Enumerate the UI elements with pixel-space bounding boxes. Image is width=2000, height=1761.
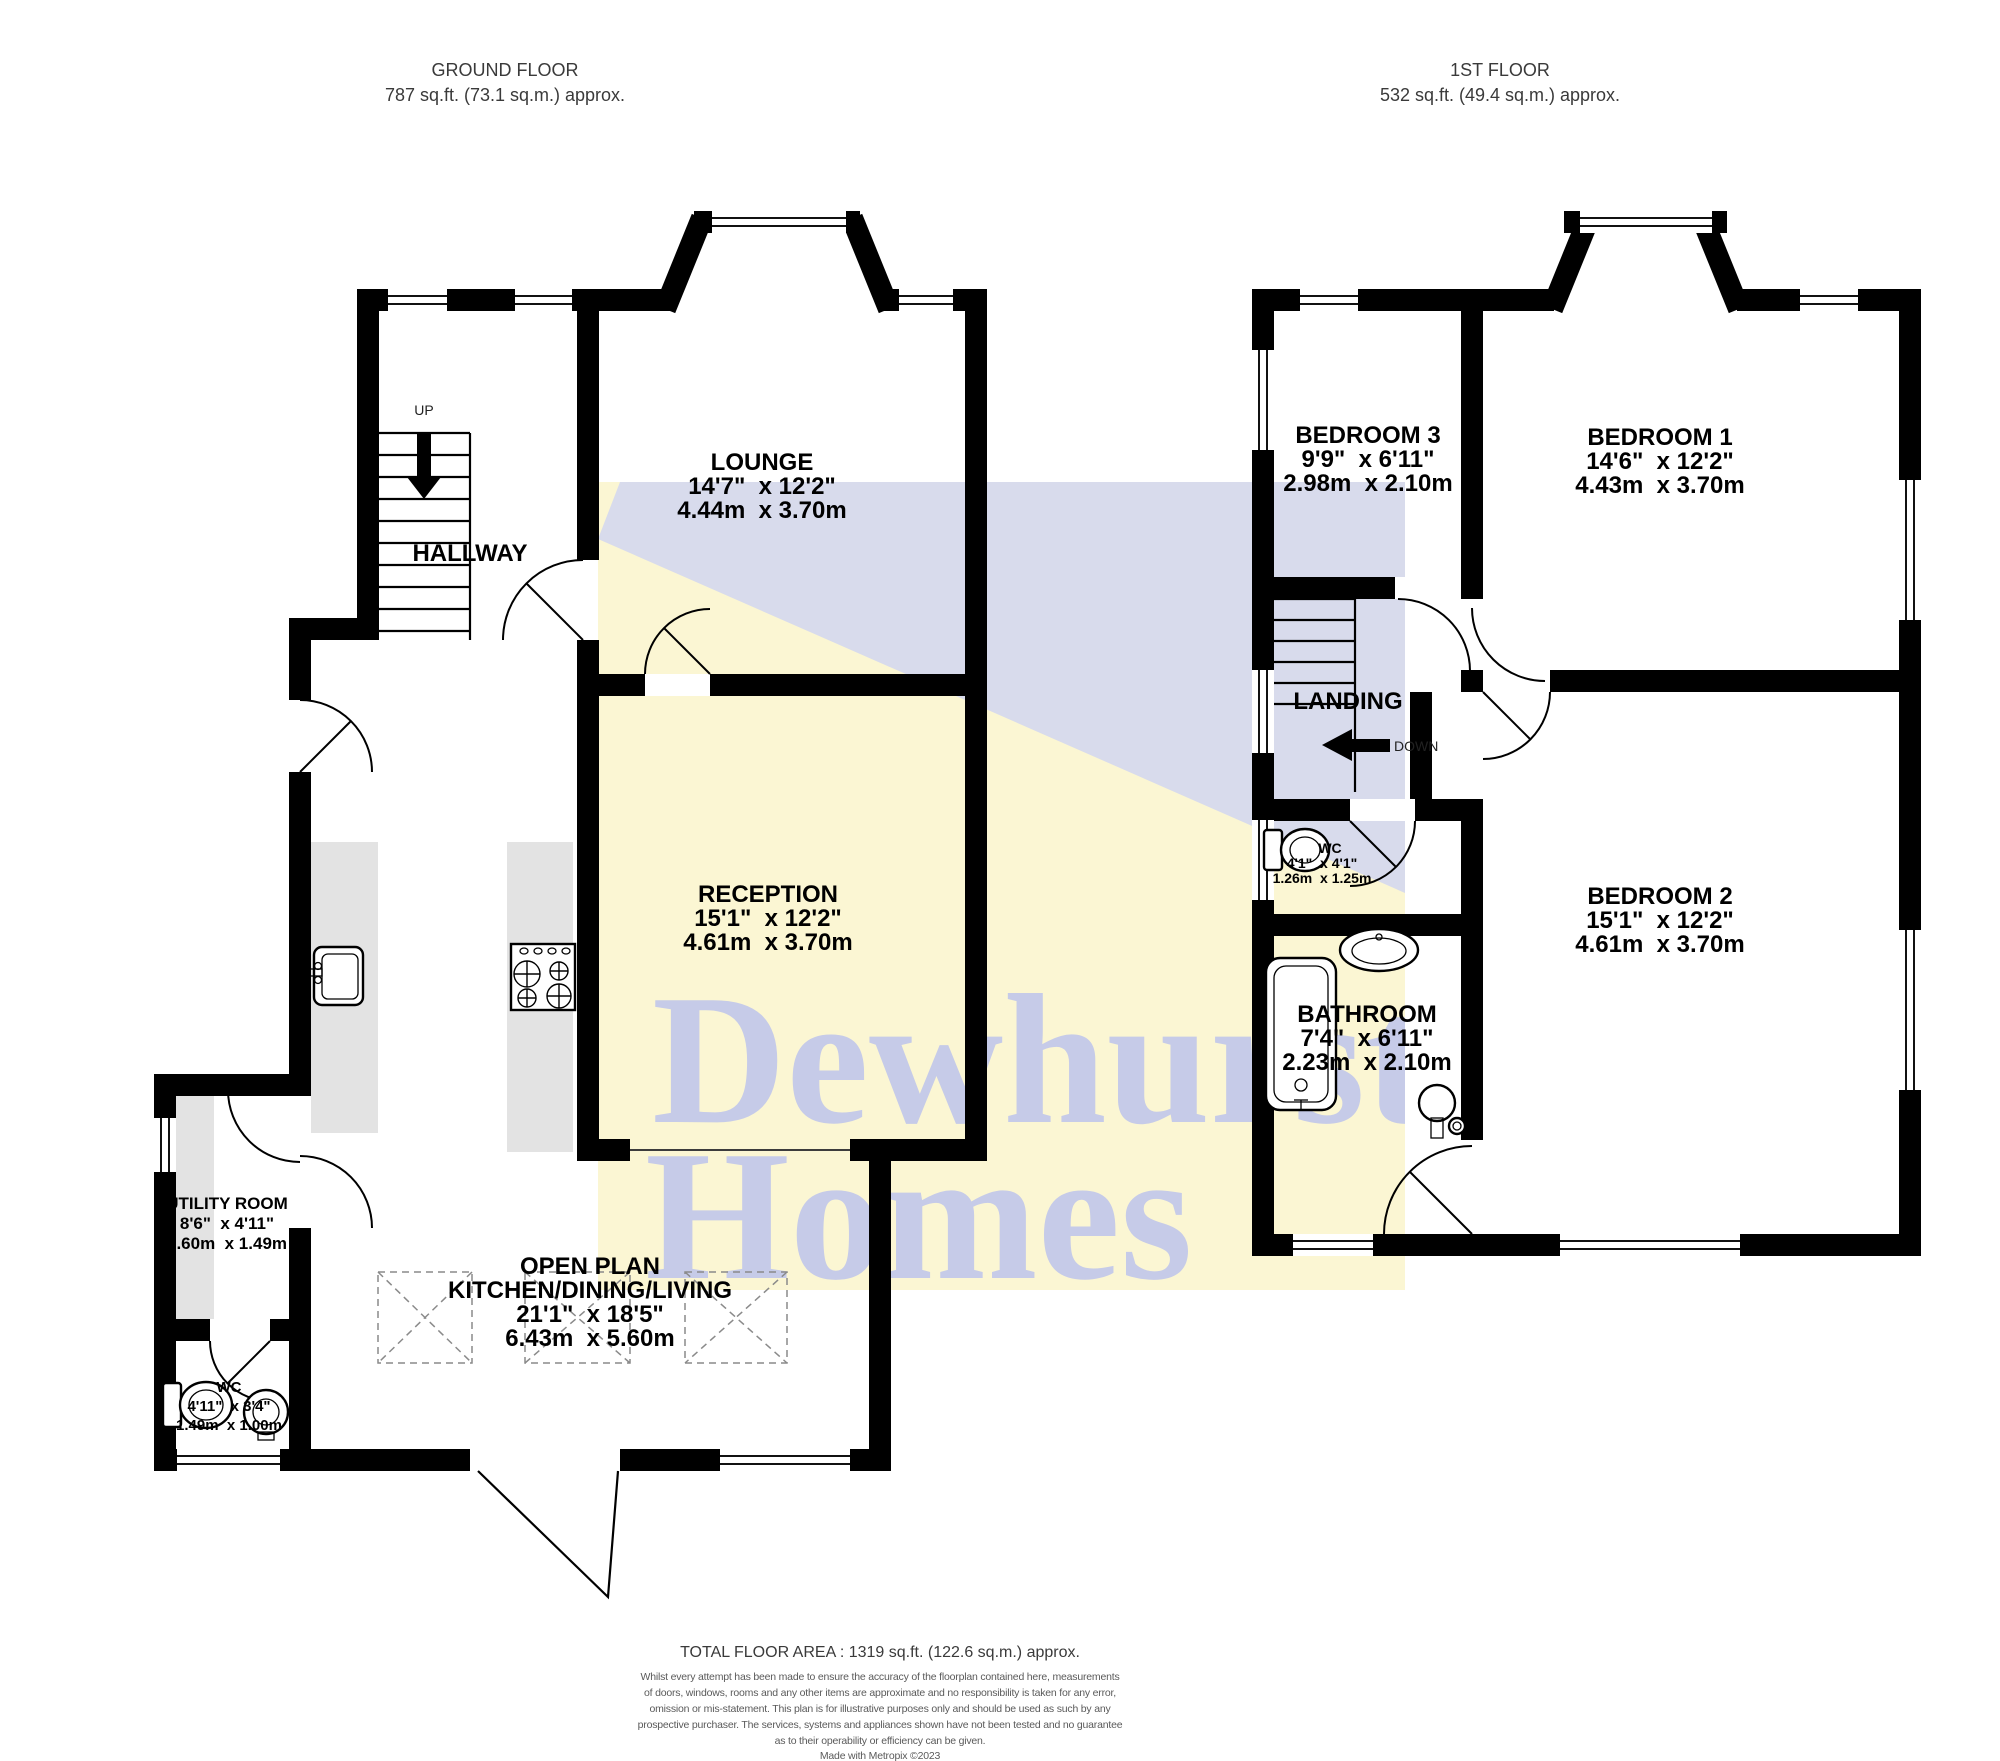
gf-wc-dims-imperial: 4'11" x 3'4" <box>187 1398 270 1415</box>
bedroom1-label: BEDROOM 1 <box>1587 424 1732 451</box>
window <box>177 1449 280 1471</box>
bathroom-dims-imperial: 7'4" x 6'11" <box>1301 1025 1434 1052</box>
first-floor-area: 532 sq.ft. (49.4 sq.m.) approx. <box>1380 85 1620 105</box>
window <box>388 289 447 311</box>
ground-floor-header: GROUND FLOOR 787 sq.ft. (73.1 sq.m.) app… <box>385 60 625 105</box>
pedestal-basin-icon <box>1419 1085 1465 1138</box>
ground-floor-stairs <box>379 433 470 640</box>
window <box>1800 289 1858 311</box>
kitchen-label-line2: KITCHEN/DINING/LIVING <box>448 1277 732 1304</box>
ff-wc-dims-imperial: 4'1" x 4'1" <box>1287 855 1358 871</box>
gf-wc-label: WC <box>217 1379 242 1396</box>
ground-floor-title: GROUND FLOOR <box>431 60 578 80</box>
window <box>720 1449 850 1471</box>
utility-dims-metric: 2.60m x 1.49m <box>167 1234 287 1253</box>
total-floor-area: TOTAL FLOOR AREA : 1319 sq.ft. (122.6 sq… <box>680 1644 1080 1661</box>
sink-icon <box>1340 929 1418 971</box>
window <box>1560 1234 1740 1256</box>
first-floor-title: 1ST FLOOR <box>1450 60 1550 80</box>
ff-wc-label: WC <box>1318 840 1341 856</box>
sink-icon <box>308 947 363 1005</box>
kitchen-dims-metric: 6.43m x 5.60m <box>505 1325 674 1352</box>
window <box>1899 930 1921 1090</box>
ground-floor-area: 787 sq.ft. (73.1 sq.m.) approx. <box>385 85 625 105</box>
footer: TOTAL FLOOR AREA : 1319 sq.ft. (122.6 sq… <box>638 1644 1123 1761</box>
first-floor-header: 1ST FLOOR 532 sq.ft. (49.4 sq.m.) approx… <box>1380 60 1620 105</box>
window <box>1293 1234 1373 1256</box>
window <box>899 289 953 311</box>
window <box>1252 350 1274 450</box>
disclaimer-line-4: prospective purchaser. The services, sys… <box>638 1719 1123 1731</box>
bathroom-dims-metric: 2.23m x 2.10m <box>1282 1049 1451 1076</box>
stairs-up-label: UP <box>414 402 433 418</box>
kitchen-label-line1: OPEN PLAN <box>520 1253 660 1280</box>
reception-label: RECEPTION <box>698 881 838 908</box>
stove-icon <box>511 944 575 1010</box>
hallway-label: HALLWAY <box>412 540 527 567</box>
bay-window <box>1580 211 1712 233</box>
window <box>154 1118 176 1172</box>
bedroom2-dims-metric: 4.61m x 3.70m <box>1575 931 1744 958</box>
window <box>515 289 572 311</box>
disclaimer-line-2: of doors, windows, rooms and any other i… <box>644 1687 1116 1699</box>
bedroom2-label: BEDROOM 2 <box>1587 883 1732 910</box>
kitchen-dims-imperial: 21'1" x 18'5" <box>516 1301 664 1328</box>
bedroom1-dims-metric: 4.43m x 3.70m <box>1575 472 1744 499</box>
ff-wc-dims-metric: 1.26m x 1.25m <box>1273 870 1372 886</box>
metropix-credit: Made with Metropix ©2023 <box>820 1750 941 1761</box>
disclaimer-line-5: as to their operability or efficiency ca… <box>775 1735 986 1747</box>
bifold-door-zigzag <box>478 1471 618 1597</box>
disclaimer-line-1: Whilst every attempt has been made to en… <box>640 1671 1119 1683</box>
reception-dims-imperial: 15'1" x 12'2" <box>694 905 842 932</box>
bedroom3-label: BEDROOM 3 <box>1295 422 1440 449</box>
disclaimer-line-3: omission or mis-statement. This plan is … <box>649 1703 1111 1715</box>
bedroom1-dims-imperial: 14'6" x 12'2" <box>1586 448 1734 475</box>
utility-label: UTILITY ROOM <box>166 1194 288 1213</box>
reception-dims-metric: 4.61m x 3.70m <box>683 929 852 956</box>
gf-wc-dims-metric: 1.49m x 1.00m <box>176 1417 282 1434</box>
stairs-up-arrow-icon <box>407 433 441 499</box>
lounge-label: LOUNGE <box>711 449 814 476</box>
window <box>1300 289 1358 311</box>
bedroom3-dims-imperial: 9'9" x 6'11" <box>1302 446 1435 473</box>
utility-dims-imperial: 8'6" x 4'11" <box>180 1214 274 1233</box>
stairs-down-label: DOWN <box>1394 738 1438 754</box>
window <box>1899 480 1921 620</box>
bay-window <box>712 211 846 233</box>
lounge-dims-imperial: 14'7" x 12'2" <box>688 473 836 500</box>
lounge-dims-metric: 4.44m x 3.70m <box>677 497 846 524</box>
bedroom2-dims-imperial: 15'1" x 12'2" <box>1586 907 1734 934</box>
landing-label: LANDING <box>1293 688 1402 715</box>
bathroom-label: BATHROOM <box>1297 1001 1437 1028</box>
floorplan-svg: Dewhurst Homes GROUND FLOOR 787 sq.ft. (… <box>0 0 2000 1761</box>
window <box>1252 670 1274 753</box>
bedroom3-dims-metric: 2.98m x 2.10m <box>1283 470 1452 497</box>
